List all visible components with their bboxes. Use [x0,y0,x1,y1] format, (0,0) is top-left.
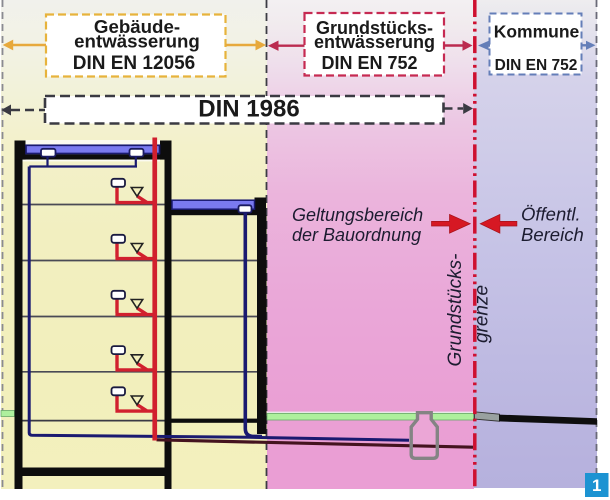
svg-text:Bereich: Bereich [521,224,584,245]
svg-text:DIN 1986: DIN 1986 [198,96,299,123]
svg-text:1: 1 [592,476,601,495]
svg-text:grenze: grenze [472,285,493,343]
svg-text:Geltungsbereich: Geltungsbereich [292,205,423,225]
svg-text:Grundstücks-: Grundstücks- [445,254,466,367]
svg-text:Kommune: Kommune [494,21,580,41]
svg-text:DIN EN 752: DIN EN 752 [495,57,578,74]
svg-text:Öffentl.: Öffentl. [521,204,581,225]
svg-text:DIN EN 12056: DIN EN 12056 [73,53,196,74]
svg-text:entwässerung: entwässerung [74,31,200,52]
svg-text:der Bauordnung: der Bauordnung [292,225,421,245]
svg-text:entwässerung: entwässerung [314,32,435,52]
svg-text:DIN EN 752: DIN EN 752 [321,53,417,73]
